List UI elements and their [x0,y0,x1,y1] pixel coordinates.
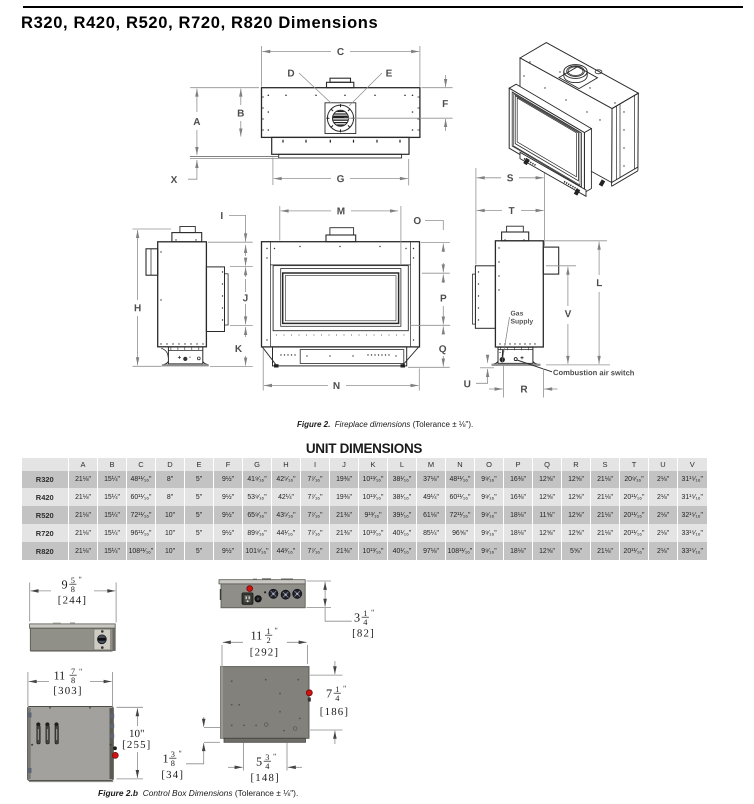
svg-text:8: 8 [171,759,175,768]
svg-text:5: 5 [71,576,75,585]
svg-text:T: T [508,206,514,217]
svg-text:": " [79,667,82,676]
svg-text:4: 4 [335,694,340,703]
svg-text:3: 3 [265,753,269,762]
svg-text:O: O [413,216,421,227]
svg-text:X: X [171,175,178,186]
svg-text:J: J [243,293,249,304]
svg-text:F: F [442,99,448,110]
svg-text:V: V [565,309,572,320]
svg-text:11: 11 [53,669,65,683]
svg-text:3: 3 [171,750,175,759]
svg-text:A: A [193,117,200,128]
svg-text:3: 3 [354,611,360,625]
svg-text:": " [274,626,277,635]
svg-text:8: 8 [71,585,75,594]
svg-text:K: K [235,344,243,355]
svg-text:[244]: [244] [58,594,87,606]
svg-text:[255]: [255] [122,739,151,751]
svg-text:7: 7 [71,667,75,676]
svg-text:": " [78,575,81,584]
svg-text:Supply: Supply [510,319,533,326]
svg-text:9: 9 [61,578,67,592]
svg-text:11: 11 [250,629,262,643]
svg-text:": " [178,749,181,758]
svg-text:4: 4 [265,762,270,771]
svg-text:C: C [337,47,344,58]
svg-text:5: 5 [256,755,262,769]
svg-text:2: 2 [267,636,271,645]
svg-text:R: R [520,384,528,395]
svg-text:1: 1 [267,627,271,636]
svg-text:P: P [440,293,447,304]
svg-text:Combustion air switch: Combustion air switch [553,368,635,377]
svg-text:L: L [596,278,602,289]
svg-text:M: M [337,206,345,217]
svg-text:Q: Q [439,344,447,355]
svg-text:U: U [464,379,471,390]
svg-text:N: N [333,381,340,392]
svg-text:H: H [134,303,141,314]
svg-text:1: 1 [162,752,168,766]
svg-text:E: E [386,68,393,79]
svg-text:4: 4 [363,618,368,627]
svg-text:S: S [507,173,514,184]
svg-text:I: I [220,211,223,222]
svg-text:[303]: [303] [53,685,82,697]
svg-text:[148]: [148] [250,772,279,784]
svg-text:7: 7 [326,687,332,701]
svg-text:[186]: [186] [320,706,349,718]
svg-text:[292]: [292] [250,646,279,658]
svg-text:8: 8 [71,676,75,685]
svg-text:Gas: Gas [510,311,523,318]
svg-text:": " [273,752,276,761]
svg-text:1: 1 [335,685,339,694]
svg-text:": " [343,684,346,693]
svg-text:": " [371,608,374,617]
svg-text:1: 1 [363,609,367,618]
svg-text:G: G [337,174,345,185]
svg-text:[34]: [34] [161,769,184,781]
svg-text:B: B [237,108,244,119]
svg-text:D: D [287,68,294,79]
svg-text:[82]: [82] [352,627,375,639]
